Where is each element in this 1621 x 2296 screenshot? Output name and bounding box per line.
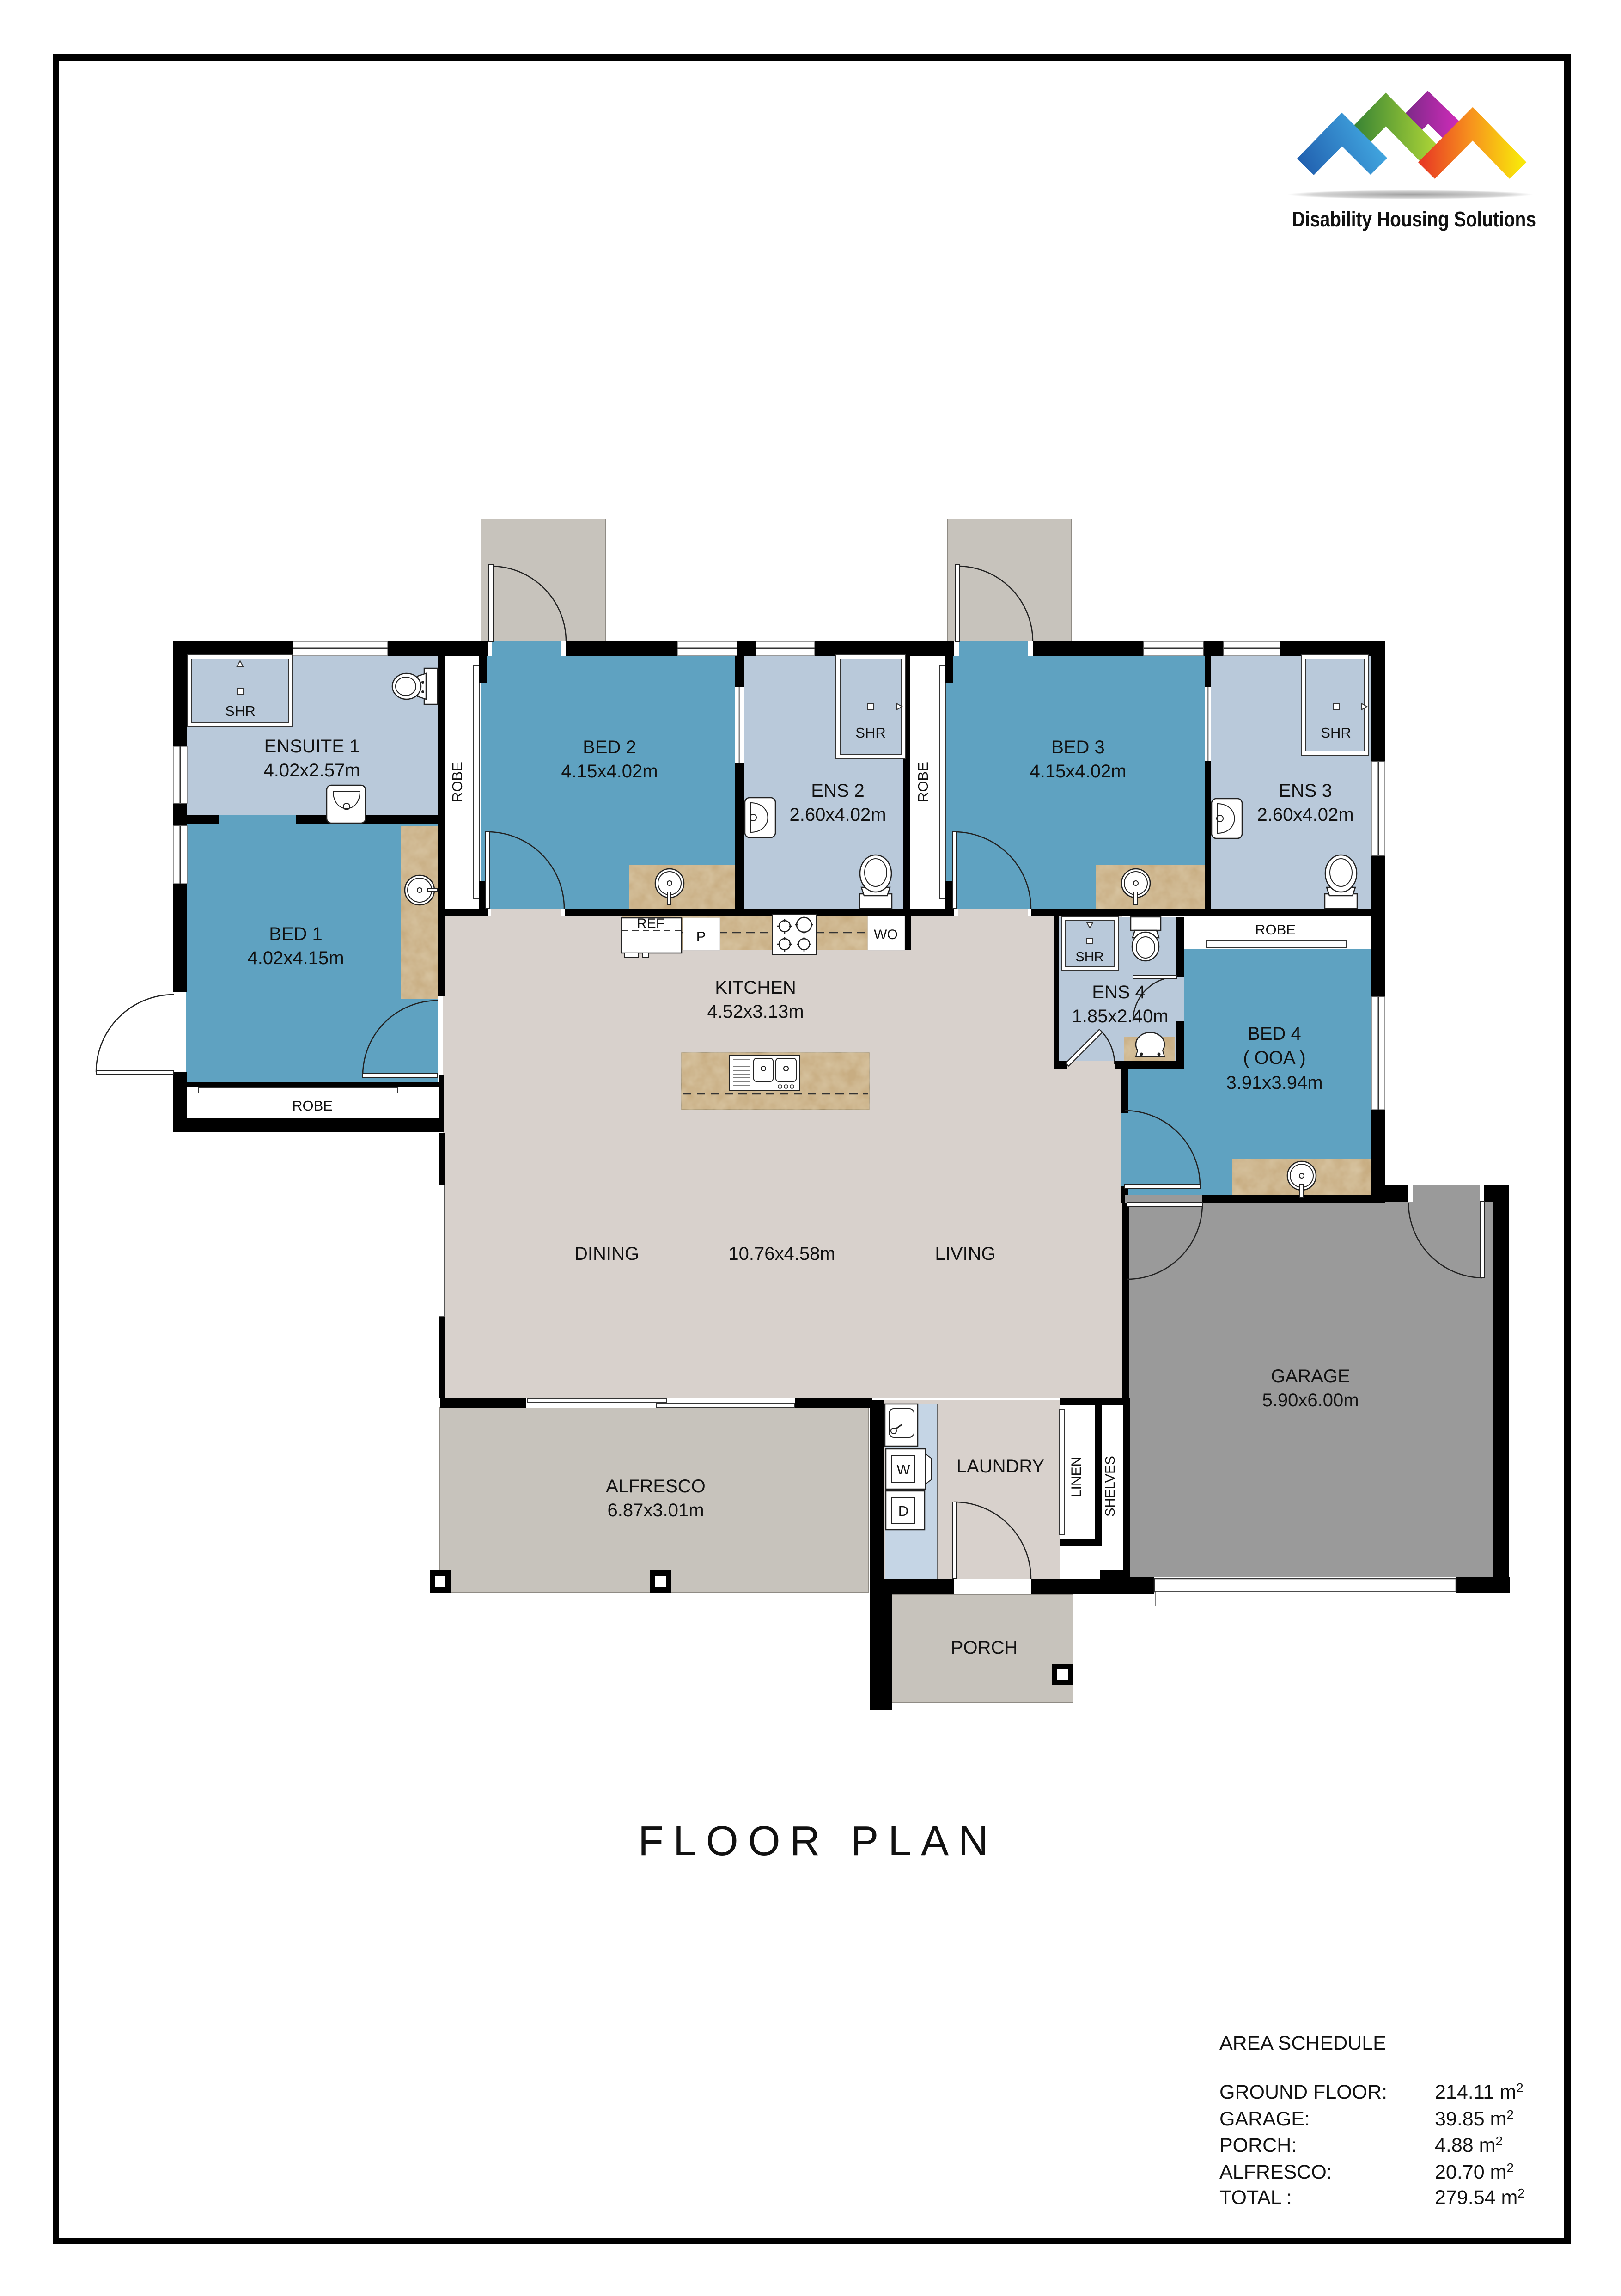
svg-text:279.54 m2: 279.54 m2 — [1435, 2186, 1525, 2209]
svg-text:GROUND FLOOR:: GROUND FLOOR: — [1219, 2081, 1387, 2103]
svg-text:6.87x3.01m: 6.87x3.01m — [607, 1500, 704, 1520]
svg-text:3.91x3.94m: 3.91x3.94m — [1226, 1073, 1322, 1093]
svg-text:SHR: SHR — [225, 703, 255, 719]
svg-text:PORCH: PORCH — [951, 1637, 1018, 1658]
svg-text:SHR: SHR — [1321, 725, 1351, 741]
svg-text:4.52x3.13m: 4.52x3.13m — [707, 1001, 804, 1022]
svg-text:BED 3: BED 3 — [1051, 737, 1105, 757]
svg-text:BED 2: BED 2 — [583, 737, 636, 757]
svg-text:1.85x2.40m: 1.85x2.40m — [1072, 1006, 1168, 1026]
svg-text:SHR: SHR — [1075, 950, 1103, 965]
svg-text:4.88 m2: 4.88 m2 — [1435, 2134, 1503, 2156]
svg-text:KITCHEN: KITCHEN — [715, 977, 796, 998]
svg-text:ALFRESCO:: ALFRESCO: — [1219, 2161, 1332, 2183]
svg-text:AREA SCHEDULE: AREA SCHEDULE — [1219, 2032, 1386, 2054]
svg-text:10.76x4.58m: 10.76x4.58m — [728, 1244, 835, 1264]
svg-text:SHELVES: SHELVES — [1103, 1456, 1118, 1517]
svg-text:214.11 m2: 214.11 m2 — [1435, 2081, 1523, 2103]
svg-text:SHR: SHR — [855, 725, 885, 741]
svg-text:BED 4: BED 4 — [1248, 1024, 1301, 1044]
svg-text:FLOOR PLAN: FLOOR PLAN — [638, 1818, 988, 1864]
svg-text:GARAGE: GARAGE — [1271, 1366, 1350, 1386]
svg-text:Disability Housing Solutions: Disability Housing Solutions — [1292, 207, 1536, 231]
svg-text:2.60x4.02m: 2.60x4.02m — [1257, 805, 1353, 825]
svg-text:ENS 2: ENS 2 — [811, 781, 865, 801]
svg-text:LAUNDRY: LAUNDRY — [957, 1456, 1044, 1477]
svg-text:4.02x2.57m: 4.02x2.57m — [263, 760, 360, 781]
svg-text:4.15x4.02m: 4.15x4.02m — [561, 761, 658, 782]
svg-text:39.85 m2: 39.85 m2 — [1435, 2107, 1514, 2130]
svg-text:WO: WO — [874, 927, 898, 942]
svg-text:REF: REF — [637, 916, 664, 931]
svg-text:TOTAL :: TOTAL : — [1219, 2186, 1292, 2209]
svg-text:ENSUITE 1: ENSUITE 1 — [264, 736, 360, 757]
svg-text:DINING: DINING — [574, 1244, 639, 1264]
svg-text:ENS 4: ENS 4 — [1092, 982, 1146, 1002]
svg-text:ROBE: ROBE — [915, 762, 931, 802]
svg-text:ROBE: ROBE — [292, 1098, 333, 1114]
svg-text:20.70 m2: 20.70 m2 — [1435, 2161, 1514, 2183]
svg-text:( OOA ): ( OOA ) — [1243, 1048, 1306, 1068]
svg-text:P: P — [696, 928, 706, 945]
svg-text:4.02x4.15m: 4.02x4.15m — [247, 948, 344, 968]
svg-text:LIVING: LIVING — [935, 1244, 995, 1264]
svg-text:D: D — [898, 1503, 908, 1519]
svg-text:BED 1: BED 1 — [269, 924, 323, 944]
svg-text:4.15x4.02m: 4.15x4.02m — [1030, 761, 1126, 782]
svg-text:ROBE: ROBE — [1255, 922, 1296, 938]
svg-text:GARAGE:: GARAGE: — [1219, 2108, 1310, 2130]
svg-text:2.60x4.02m: 2.60x4.02m — [789, 805, 886, 825]
svg-text:ROBE: ROBE — [449, 762, 465, 802]
svg-text:ALFRESCO: ALFRESCO — [606, 1476, 706, 1496]
svg-text:5.90x6.00m: 5.90x6.00m — [1262, 1390, 1359, 1411]
svg-text:ENS 3: ENS 3 — [1279, 781, 1332, 801]
svg-text:W: W — [896, 1461, 910, 1478]
svg-text:LINEN: LINEN — [1069, 1457, 1084, 1497]
svg-text:PORCH:: PORCH: — [1219, 2134, 1297, 2156]
